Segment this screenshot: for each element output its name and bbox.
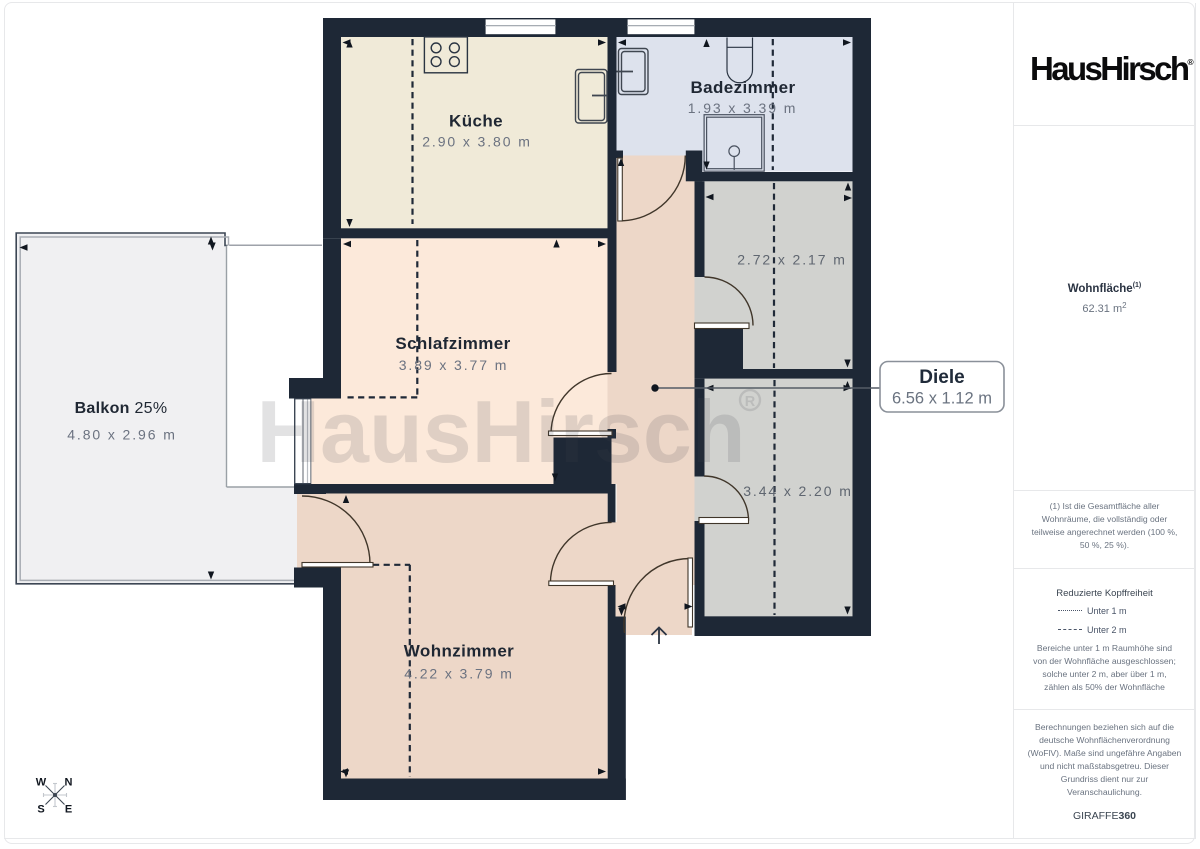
svg-text:Schlafzimmer: Schlafzimmer xyxy=(395,334,510,353)
svg-text:N: N xyxy=(65,777,73,789)
svg-text:2.90 x 3.80 m: 2.90 x 3.80 m xyxy=(422,134,532,150)
svg-text:2.72 x 2.17 m: 2.72 x 2.17 m xyxy=(737,252,847,268)
svg-text:6.56 x 1.12 m: 6.56 x 1.12 m xyxy=(892,390,992,408)
svg-text:Diele: Diele xyxy=(919,367,964,388)
svg-text:W: W xyxy=(36,777,47,789)
svg-text:HausHirsch: HausHirsch xyxy=(256,382,745,481)
svg-text:4.80 x 2.96 m: 4.80 x 2.96 m xyxy=(67,427,177,443)
svg-text:Balkon 25%: Balkon 25% xyxy=(75,400,168,417)
svg-text:R: R xyxy=(745,394,756,410)
svg-text:3.44 x 2.20 m: 3.44 x 2.20 m xyxy=(743,483,853,499)
svg-text:4.22 x 3.79 m: 4.22 x 3.79 m xyxy=(404,666,514,682)
svg-text:Badezimmer: Badezimmer xyxy=(690,78,795,97)
svg-text:3.89 x 3.77 m: 3.89 x 3.77 m xyxy=(399,357,509,373)
svg-text:1.93 x 3.39 m: 1.93 x 3.39 m xyxy=(688,100,798,116)
svg-text:E: E xyxy=(65,804,72,816)
svg-text:S: S xyxy=(37,804,44,816)
svg-text:Küche: Küche xyxy=(449,112,503,131)
svg-text:Wohnzimmer: Wohnzimmer xyxy=(404,642,514,661)
